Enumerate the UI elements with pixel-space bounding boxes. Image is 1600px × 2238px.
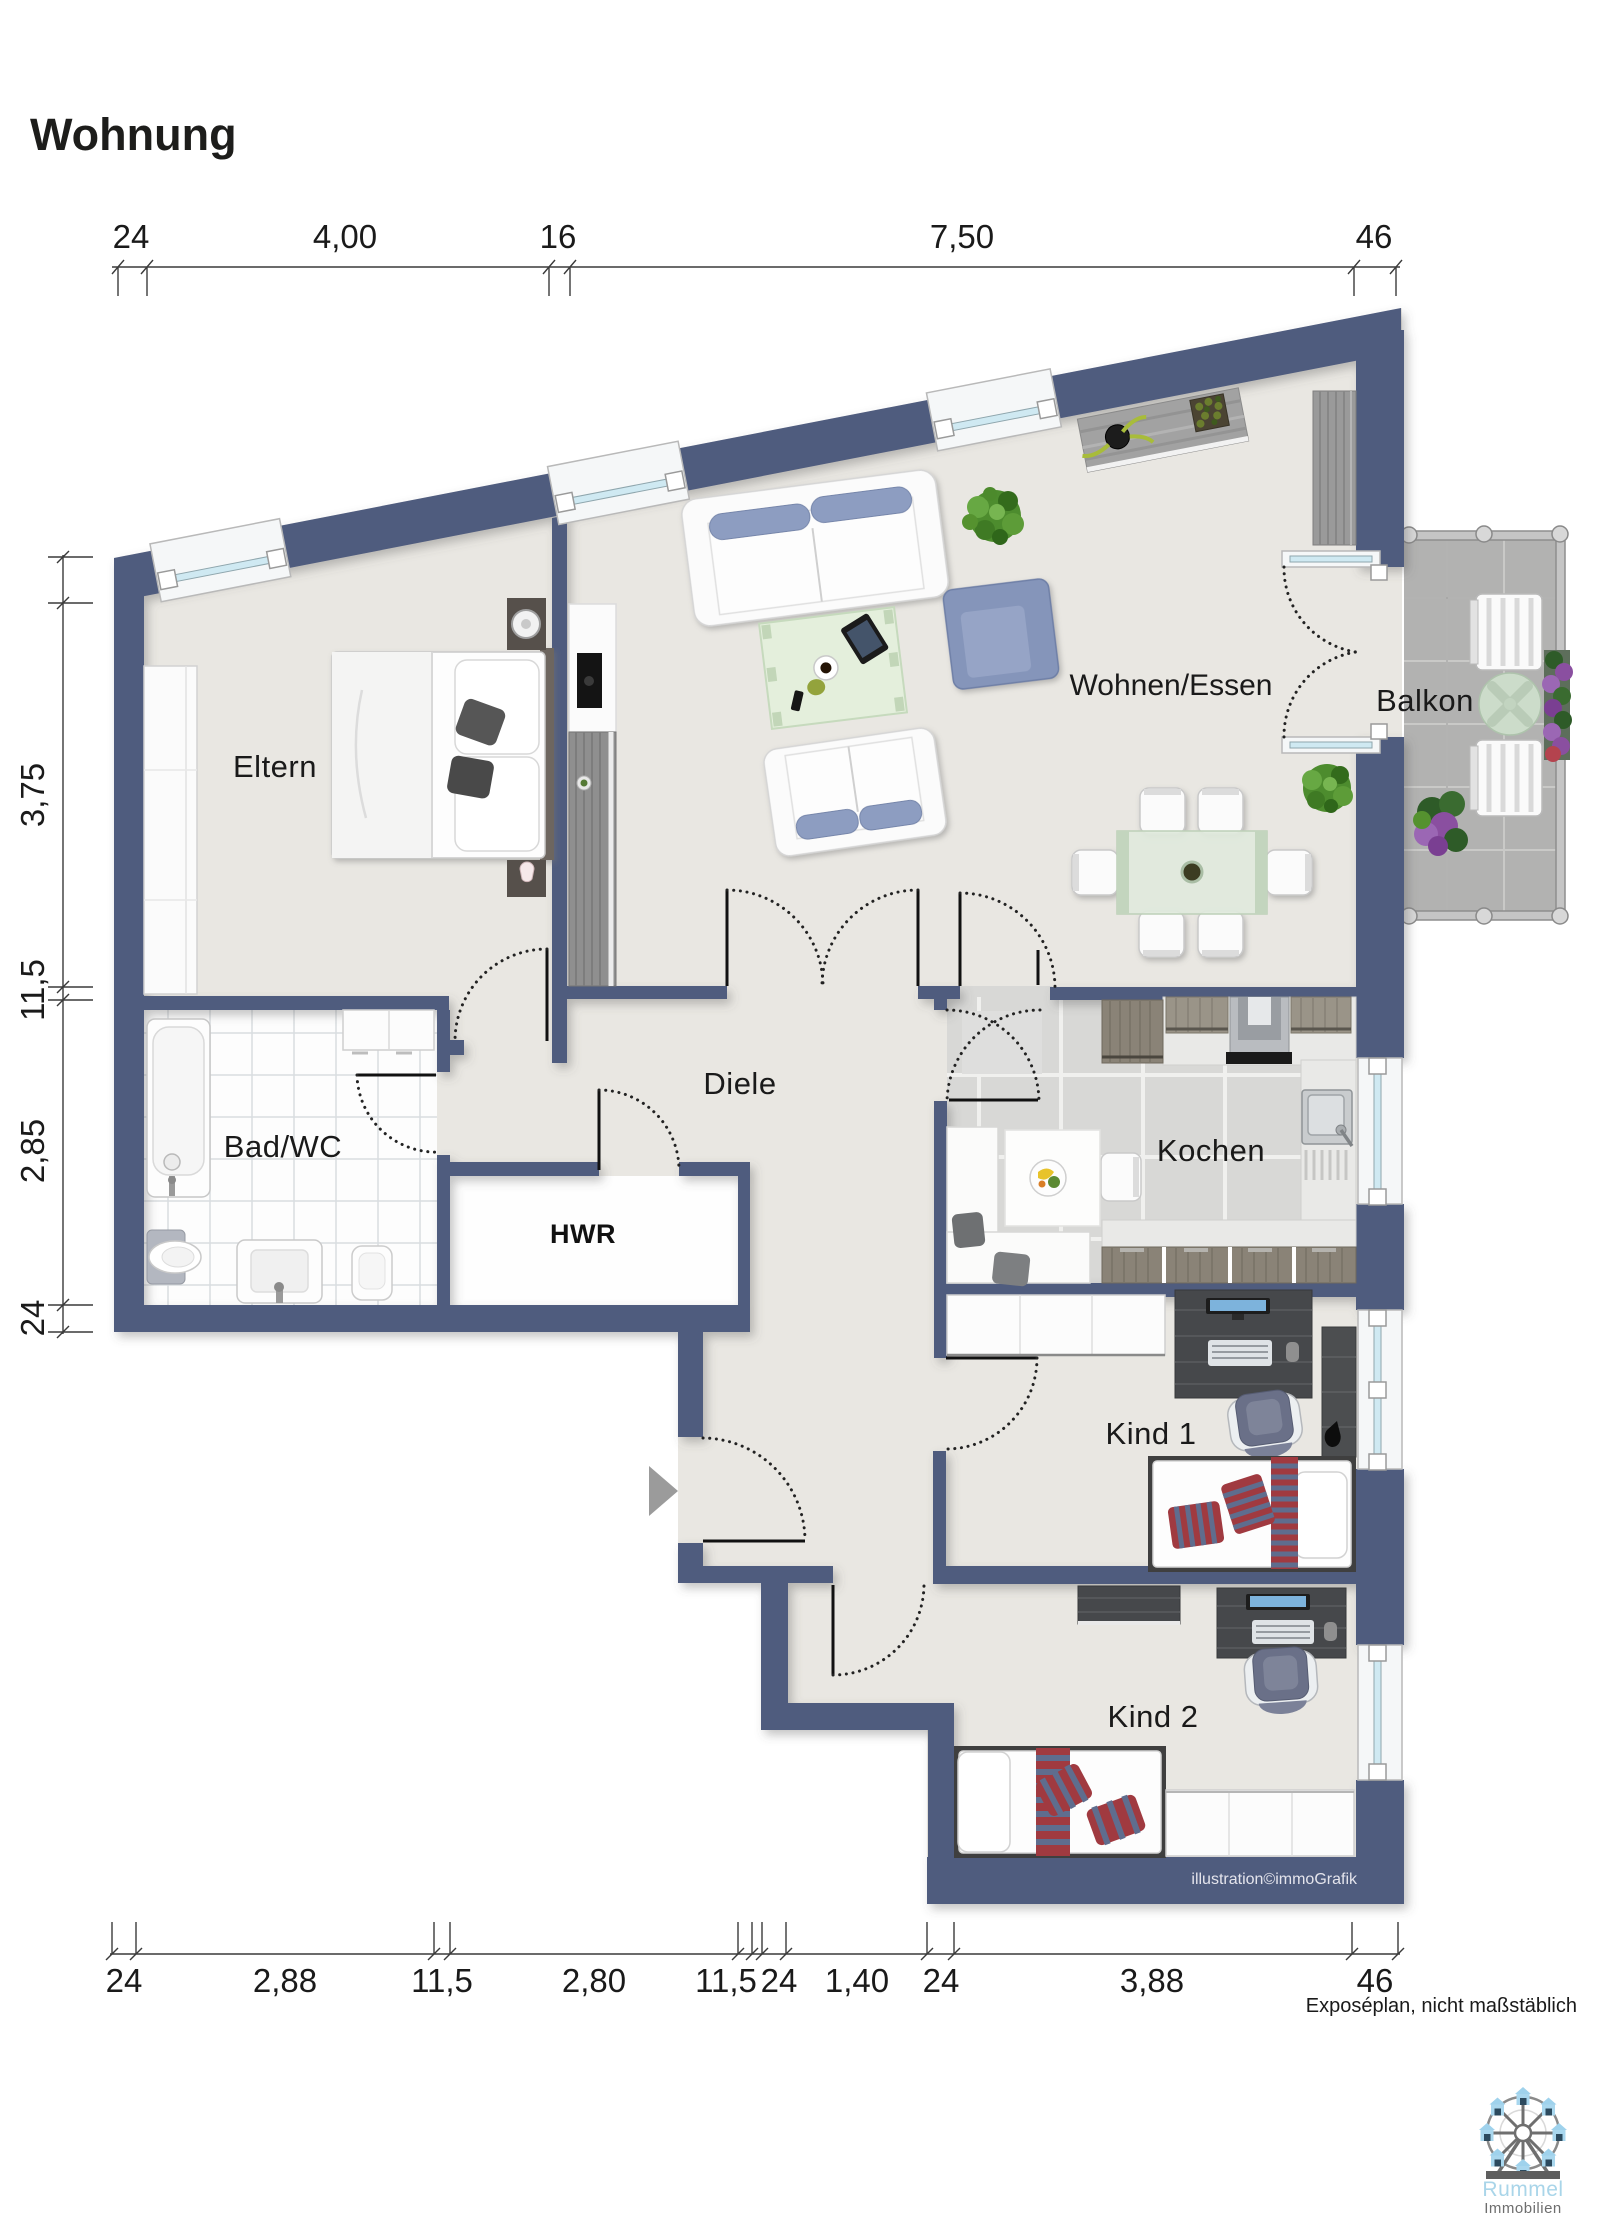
svg-text:16: 16 bbox=[540, 218, 577, 255]
svg-text:illustration©immoGrafik: illustration©immoGrafik bbox=[1191, 1871, 1358, 1888]
svg-text:2,80: 2,80 bbox=[562, 1962, 626, 1999]
svg-text:2,85: 2,85 bbox=[14, 1119, 51, 1183]
svg-text:Kind 1: Kind 1 bbox=[1106, 1416, 1197, 1451]
svg-text:Rummel: Rummel bbox=[1482, 2178, 1563, 2201]
svg-text:Eltern: Eltern bbox=[233, 749, 317, 784]
svg-text:3,75: 3,75 bbox=[14, 763, 51, 827]
svg-text:3,88: 3,88 bbox=[1120, 1962, 1184, 1999]
svg-text:Wohnung: Wohnung bbox=[30, 109, 237, 160]
svg-text:24: 24 bbox=[113, 218, 150, 255]
svg-text:46: 46 bbox=[1357, 1962, 1394, 1999]
svg-text:Diele: Diele bbox=[703, 1066, 776, 1101]
svg-text:Immobilien: Immobilien bbox=[1484, 2200, 1562, 2217]
svg-text:24: 24 bbox=[761, 1962, 798, 1999]
svg-text:Wohnen/Essen: Wohnen/Essen bbox=[1070, 669, 1273, 702]
svg-text:24: 24 bbox=[923, 1962, 960, 1999]
svg-text:4,00: 4,00 bbox=[313, 218, 377, 255]
svg-text:11,5: 11,5 bbox=[14, 959, 51, 1021]
svg-text:7,50: 7,50 bbox=[930, 218, 994, 255]
svg-text:HWR: HWR bbox=[550, 1219, 616, 1249]
svg-text:24: 24 bbox=[14, 1300, 51, 1337]
svg-text:Bad/WC: Bad/WC bbox=[224, 1129, 342, 1164]
svg-text:24: 24 bbox=[106, 1962, 143, 1999]
svg-text:Kochen: Kochen bbox=[1157, 1133, 1265, 1168]
svg-text:Kind 2: Kind 2 bbox=[1108, 1699, 1199, 1734]
svg-text:1,40: 1,40 bbox=[825, 1962, 889, 1999]
svg-text:11,5: 11,5 bbox=[411, 1962, 473, 1999]
svg-text:Balkon: Balkon bbox=[1376, 683, 1474, 718]
svg-text:11,5: 11,5 bbox=[695, 1962, 757, 1999]
svg-text:46: 46 bbox=[1356, 218, 1393, 255]
svg-text:Exposéplan, nicht maßstäblich: Exposéplan, nicht maßstäblich bbox=[1306, 1995, 1577, 2017]
svg-text:2,88: 2,88 bbox=[253, 1962, 317, 1999]
